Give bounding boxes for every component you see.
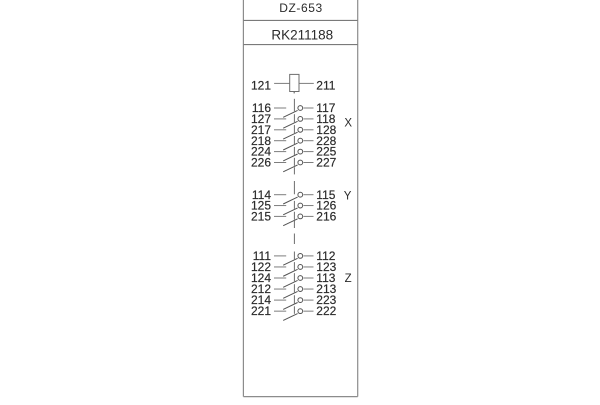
svg-text:216: 216 [316,210,336,224]
svg-text:211: 211 [316,79,335,93]
svg-text:Y: Y [344,191,352,203]
svg-text:221: 221 [251,304,271,318]
svg-text:121: 121 [251,79,271,93]
svg-text:222: 222 [316,304,336,318]
svg-text:227: 227 [316,156,336,170]
svg-text:226: 226 [251,156,271,170]
svg-text:215: 215 [251,210,271,224]
svg-text:RK211188: RK211188 [271,28,333,43]
svg-text:X: X [344,117,352,129]
svg-text:DZ-653: DZ-653 [279,1,323,15]
svg-text:Z: Z [345,273,352,285]
